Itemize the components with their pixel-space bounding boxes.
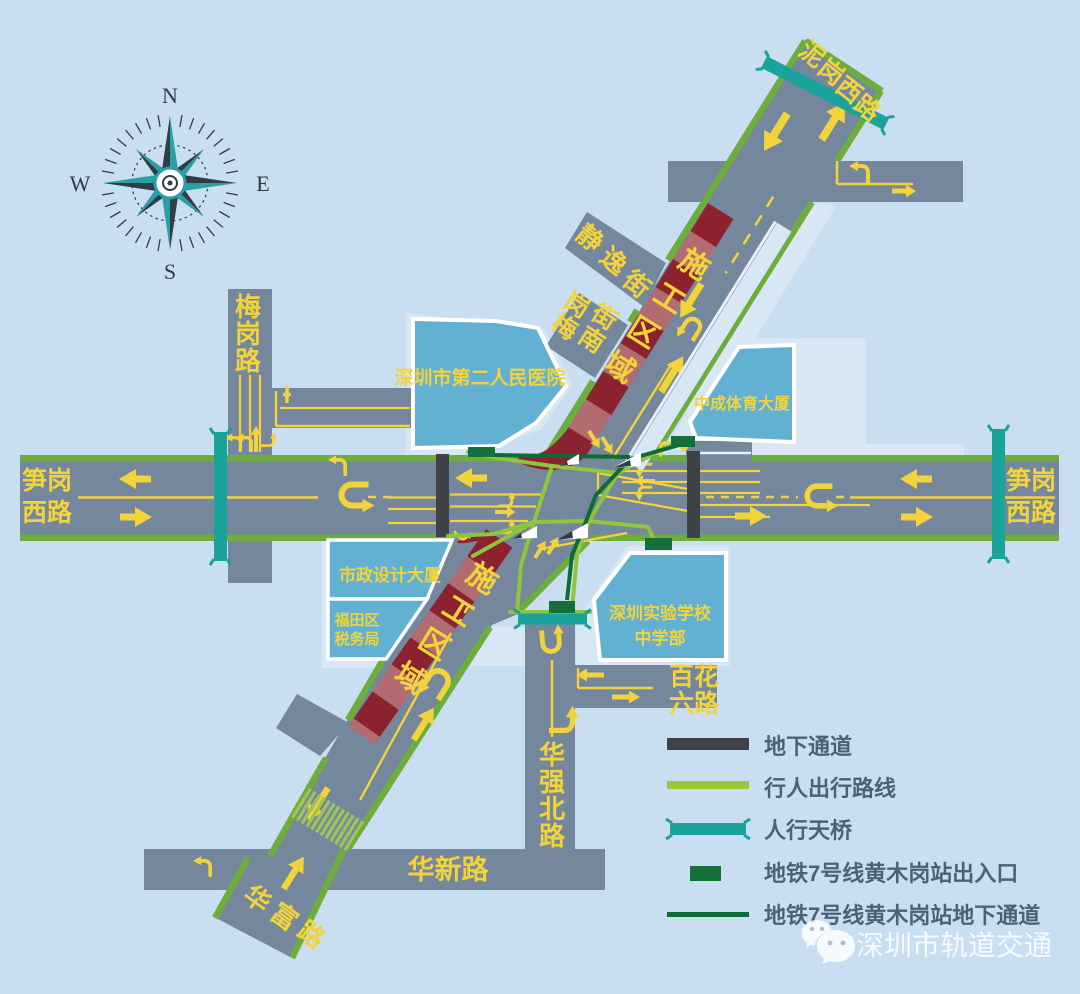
svg-text:W: W [70,171,91,196]
svg-text:市政设计大厦: 市政设计大厦 [339,565,442,585]
svg-text:华新路: 华新路 [408,854,490,885]
svg-text:福田区: 福田区 [333,611,379,629]
svg-text:深圳市轨道交通: 深圳市轨道交通 [856,930,1052,961]
svg-text:地下通道: 地下通道 [764,734,852,759]
svg-text:西路: 西路 [1006,499,1057,527]
svg-text:地铁7号线黄木岗站地下通道: 地铁7号线黄木岗站地下通道 [764,903,1040,928]
svg-text:中成体育大厦: 中成体育大厦 [694,394,791,413]
svg-text:北: 北 [539,794,565,824]
svg-text:路: 路 [235,346,262,376]
svg-text:华: 华 [539,740,565,770]
svg-text:笋岗: 笋岗 [22,466,72,495]
svg-text:人行天桥: 人行天桥 [764,818,852,843]
svg-text:岗: 岗 [235,319,261,349]
svg-text:西路: 西路 [22,499,73,527]
svg-text:强: 强 [539,767,565,797]
svg-text:百花: 百花 [669,663,719,691]
svg-text:税务局: 税务局 [334,630,379,648]
svg-text:行人出行路线: 行人出行路线 [763,776,896,801]
svg-text:深圳市第二人民医院: 深圳市第二人民医院 [394,366,565,389]
svg-text:深圳实验学校: 深圳实验学校 [609,603,712,623]
svg-text:中学部: 中学部 [635,628,686,648]
svg-text:六路: 六路 [669,690,720,718]
svg-text:梅: 梅 [235,292,261,322]
svg-text:N: N [162,83,178,108]
svg-text:路: 路 [539,821,566,851]
svg-text:E: E [256,171,269,196]
svg-text:S: S [164,259,176,284]
svg-text:笋岗: 笋岗 [1006,466,1056,495]
svg-text:地铁7号线黄木岗站出入口: 地铁7号线黄木岗站出入口 [764,861,1018,886]
